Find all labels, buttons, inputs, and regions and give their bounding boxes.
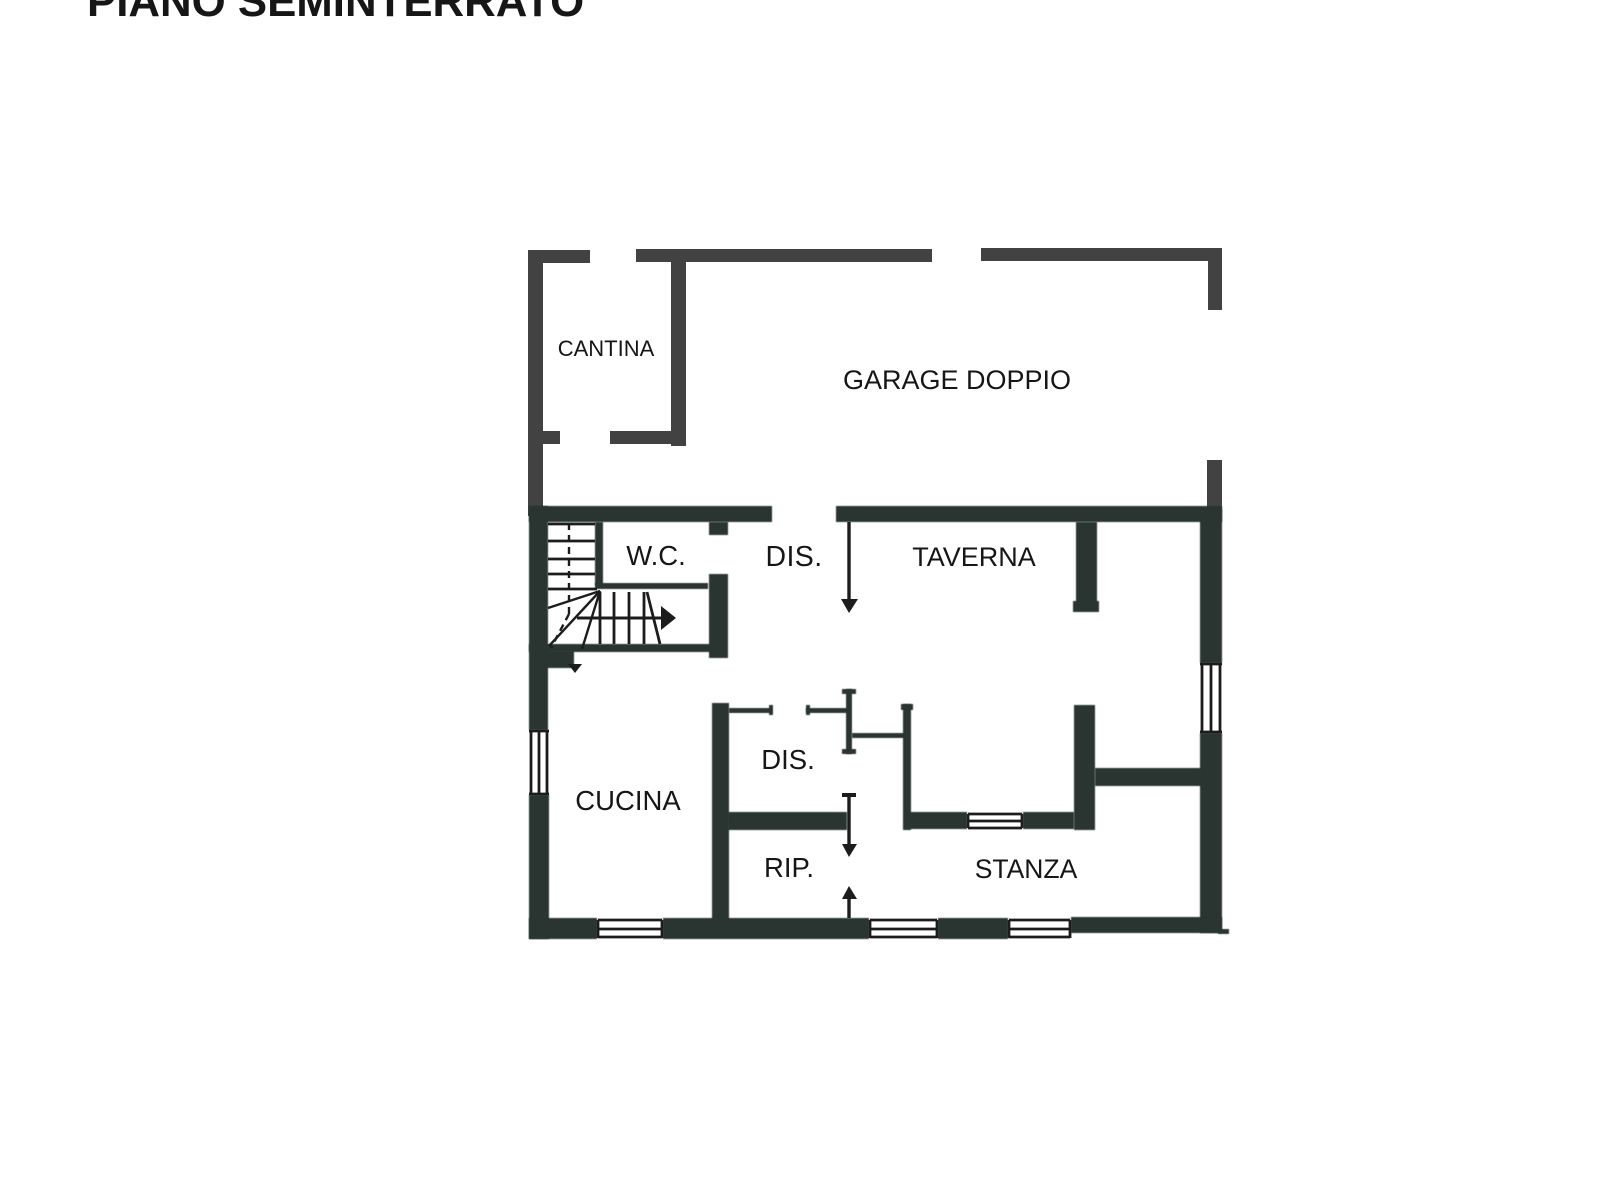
svg-text:CANTINA: CANTINA (558, 336, 655, 361)
svg-text:PIANO SEMINTERRATO: PIANO SEMINTERRATO (87, 0, 584, 26)
svg-text:RIP.: RIP. (764, 852, 814, 883)
svg-text:W.C.: W.C. (626, 540, 686, 571)
svg-text:CUCINA: CUCINA (575, 785, 681, 816)
svg-text:STANZA: STANZA (975, 854, 1078, 884)
svg-text:GARAGE DOPPIO: GARAGE DOPPIO (843, 365, 1071, 395)
svg-text:DIS.: DIS. (765, 541, 822, 573)
svg-text:DIS.: DIS. (761, 744, 814, 775)
svg-text:TAVERNA: TAVERNA (912, 542, 1036, 572)
